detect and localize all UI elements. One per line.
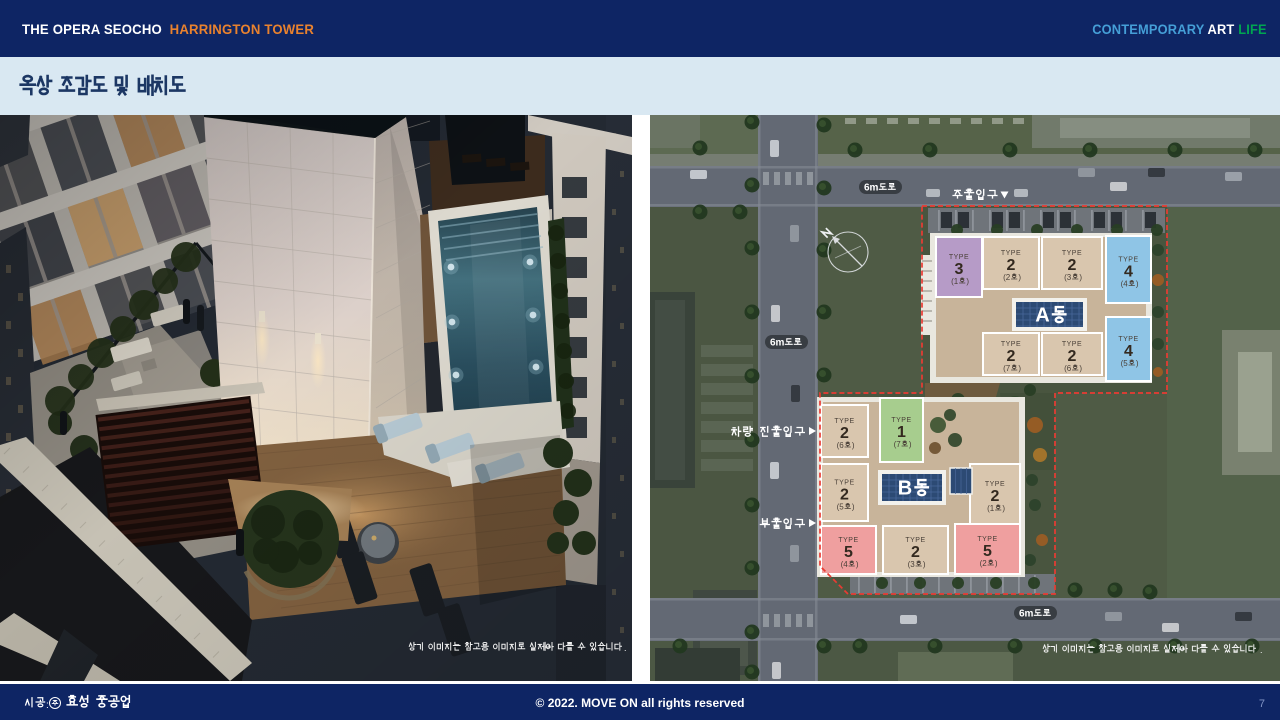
svg-text:): ) [852,503,855,512]
svg-text:TYPE: TYPE [977,536,997,543]
svg-text:3: 3 [955,261,964,278]
svg-text:(7: (7 [1003,364,1011,373]
svg-text:B: B [898,478,912,500]
svg-text:(6: (6 [837,441,845,450]
svg-text:TYPE: TYPE [1118,257,1138,264]
svg-text:): ) [923,560,926,569]
svg-text:(5: (5 [837,503,845,512]
svg-text:6m: 6m [864,183,879,194]
svg-text:TYPE: TYPE [891,417,911,424]
svg-text:5: 5 [983,543,992,560]
svg-text:(3: (3 [908,560,916,569]
svg-text:1: 1 [897,424,906,441]
svg-text:): ) [1018,273,1021,282]
svg-text:): ) [995,559,998,568]
svg-text:TYPE: TYPE [834,480,854,487]
svg-text:): ) [1079,273,1082,282]
svg-text:): ) [1136,359,1139,368]
svg-text:TYPE: TYPE [1001,341,1021,348]
svg-text:.: . [1260,645,1263,655]
svg-text:(7: (7 [894,440,902,449]
svg-text:(1: (1 [987,504,995,513]
svg-text:4: 4 [1124,264,1133,281]
svg-text:© 2022. MOVE ON all rights re: © 2022. MOVE ON all rights reserved [536,696,745,710]
svg-text:A: A [1035,305,1049,327]
svg-text:): ) [852,441,855,450]
svg-text:TYPE: TYPE [985,481,1005,488]
svg-text:): ) [966,277,969,286]
svg-text:TYPE: TYPE [949,254,969,261]
svg-text:TYPE: TYPE [1001,250,1021,257]
svg-text:(5: (5 [1121,359,1129,368]
svg-text:): ) [1136,280,1139,289]
svg-text:2: 2 [840,487,849,504]
svg-text:(4: (4 [1121,280,1129,289]
svg-text:2: 2 [1007,257,1016,274]
svg-text:(3: (3 [1064,273,1072,282]
svg-text:4: 4 [1124,343,1133,360]
svg-text:5: 5 [844,544,853,561]
svg-text:): ) [909,440,912,449]
svg-text:2: 2 [840,425,849,442]
svg-text:TYPE: TYPE [834,418,854,425]
svg-text:(2: (2 [980,559,988,568]
svg-text:TYPE: TYPE [838,537,858,544]
svg-text:): ) [1018,364,1021,373]
svg-text:.: . [624,643,627,653]
svg-text:2: 2 [1068,348,1077,365]
svg-text:): ) [1079,364,1082,373]
svg-text:): ) [1002,504,1005,513]
svg-text:2: 2 [1007,348,1016,365]
svg-text:TYPE: TYPE [1118,336,1138,343]
svg-text:7: 7 [1259,698,1265,710]
svg-text:2: 2 [911,544,920,561]
svg-text:2: 2 [991,488,1000,505]
svg-text:TYPE: TYPE [1062,341,1082,348]
svg-text:TYPE: TYPE [905,537,925,544]
svg-text::: : [46,700,49,711]
svg-text:(6: (6 [1064,364,1072,373]
svg-text:(4: (4 [841,560,849,569]
svg-text:2: 2 [1068,257,1077,274]
svg-text:(2: (2 [1003,273,1011,282]
svg-text:): ) [856,560,859,569]
svg-text:TYPE: TYPE [1062,250,1082,257]
svg-text:(1: (1 [951,277,959,286]
svg-text:6m: 6m [1019,609,1034,620]
svg-text:6m: 6m [770,338,785,349]
